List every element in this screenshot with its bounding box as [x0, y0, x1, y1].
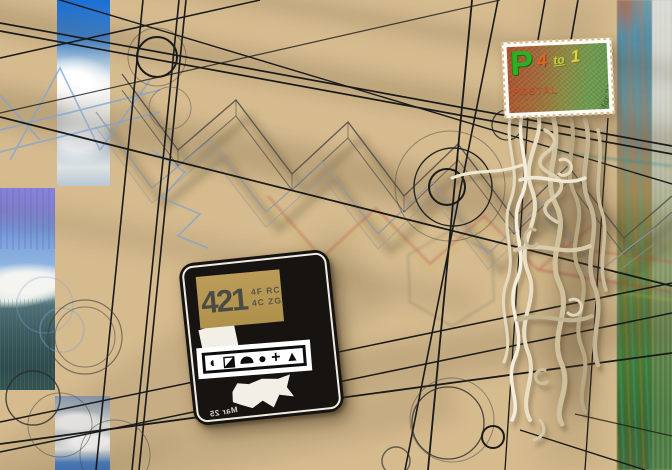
- sign-421: 421 4F RC 4C ZG ◐ ◪ ● + ▲ Mar 25: [178, 249, 345, 427]
- stamp-word-postal: POSTAL: [512, 85, 558, 98]
- stamp-ratio: 4 to 1: [536, 46, 581, 71]
- sign-number-panel: 421 4F RC 4C ZG: [196, 269, 284, 328]
- stamp-ratio-denominator: 1: [569, 46, 581, 66]
- circle-half-filled-icon: ◐: [209, 355, 219, 371]
- collage-canvas: P 4 to 1 POSTAL magnitude E&O Mar 21 421…: [0, 0, 672, 470]
- square-diagonal-half-icon: ◪: [222, 353, 236, 369]
- circle-filled-icon: ●: [258, 351, 268, 367]
- semicircle-filled-icon: [240, 356, 254, 364]
- stamp-ratio-word: to: [552, 52, 565, 67]
- stamp-handwritten-note: E&O Mar 21: [592, 83, 610, 113]
- plus-icon: +: [271, 350, 281, 366]
- stamp-face: P 4 to 1 POSTAL magnitude E&O Mar 21: [507, 43, 610, 113]
- sign-code-bottom: 4C ZG: [252, 295, 283, 308]
- sign-codes: 4F RC 4C ZG: [251, 284, 283, 309]
- postage-stamp: P 4 to 1 POSTAL magnitude E&O Mar 21: [501, 38, 614, 119]
- stamp-ratio-numerator: 4: [536, 51, 548, 71]
- stamp-letter: P: [510, 44, 534, 84]
- triangle-filled-icon: ▲: [285, 348, 300, 364]
- sign-number: 421: [200, 283, 248, 318]
- stamp-word-magnitude: magnitude: [514, 97, 554, 109]
